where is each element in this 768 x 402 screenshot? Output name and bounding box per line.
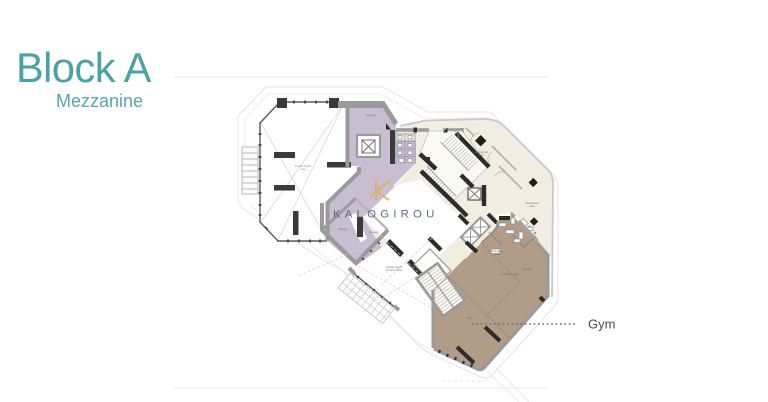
svg-text:Gym: Gym [467,316,472,320]
svg-text:Storage: Storage [369,230,379,234]
svg-text:area: area [478,153,484,157]
svg-text:Storage: Storage [522,267,532,271]
svg-text:Storage: Storage [338,227,348,231]
svg-text:Storage: Storage [366,113,376,117]
svg-text:entrance lobby: entrance lobby [385,268,403,272]
svg-text:area: area [529,204,535,208]
svg-text:area: area [494,252,500,256]
svg-text:KALOGIROU: KALOGIROU [333,209,439,221]
svg-text:area: area [300,167,306,171]
svg-text:Gym: Gym [588,317,615,332]
